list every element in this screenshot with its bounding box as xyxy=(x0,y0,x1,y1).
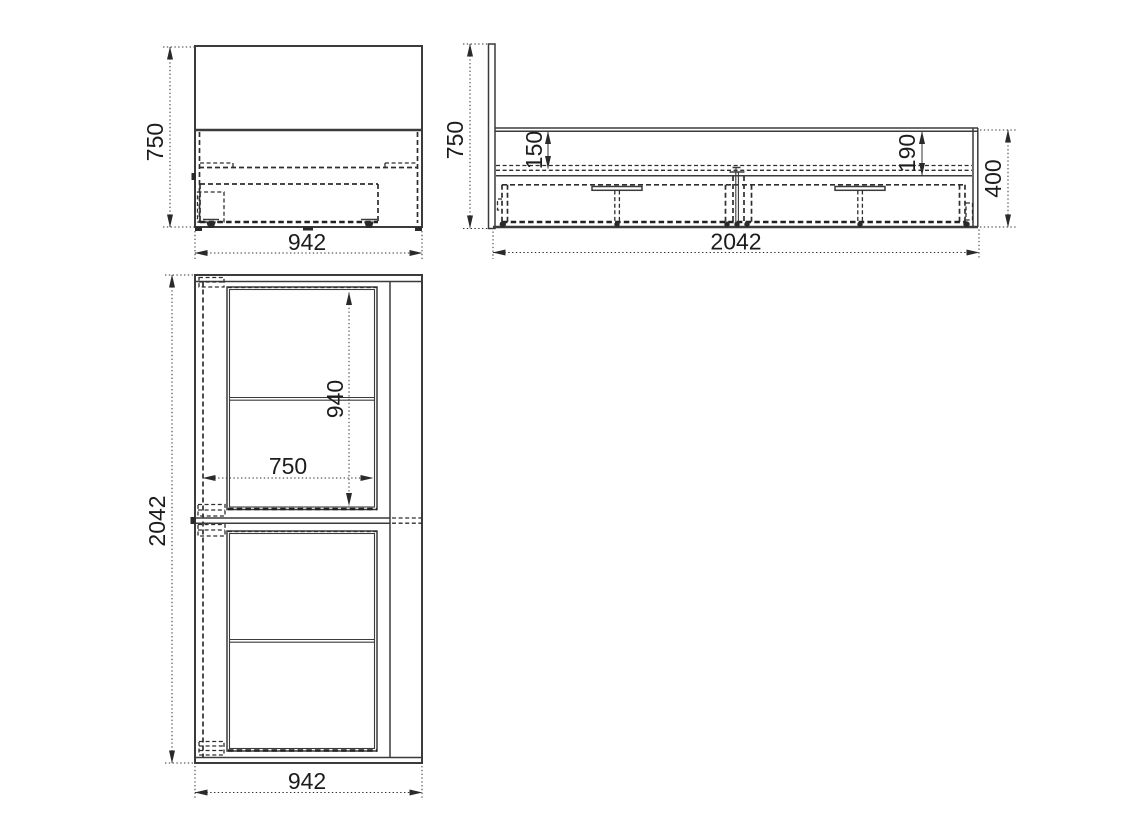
bed-dimension-drawing: 750 942 750 xyxy=(0,0,1121,840)
side-top-rail xyxy=(495,128,978,131)
drawer-handle-2 xyxy=(835,187,885,191)
plan-length-label: 2042 xyxy=(144,495,170,546)
front-view: 750 942 xyxy=(142,46,422,259)
side-base-label: 400 xyxy=(980,159,1006,197)
front-leg-hidden-box xyxy=(198,192,225,222)
plan-middle-rail xyxy=(195,518,390,523)
front-side-fitting xyxy=(192,173,197,180)
front-outline xyxy=(195,46,422,227)
side-view: 750 150 190 400 2042 xyxy=(442,44,1016,259)
plan-width-label: 942 xyxy=(288,768,326,794)
plan-drawer-width-label: 750 xyxy=(269,453,307,479)
plan-view: 2042 940 750 942 xyxy=(144,275,422,798)
plan-lower-drawer xyxy=(227,531,377,751)
plan-drawer-length-label: 940 xyxy=(322,380,348,418)
front-width-label: 942 xyxy=(288,229,326,255)
side-length-label: 2042 xyxy=(710,229,761,255)
front-drawer-hidden xyxy=(200,184,378,222)
side-footboard xyxy=(973,128,978,227)
front-height-label: 750 xyxy=(142,123,168,161)
technical-drawing-page: 750 942 750 xyxy=(0,0,1121,840)
drawer-handle-1 xyxy=(592,187,642,191)
side-headboard xyxy=(489,44,496,229)
side-height-label: 750 xyxy=(442,121,468,159)
side-rail-label: 190 xyxy=(894,134,920,172)
plan-side-fitting xyxy=(191,517,196,524)
side-inset-label: 150 xyxy=(521,131,547,169)
